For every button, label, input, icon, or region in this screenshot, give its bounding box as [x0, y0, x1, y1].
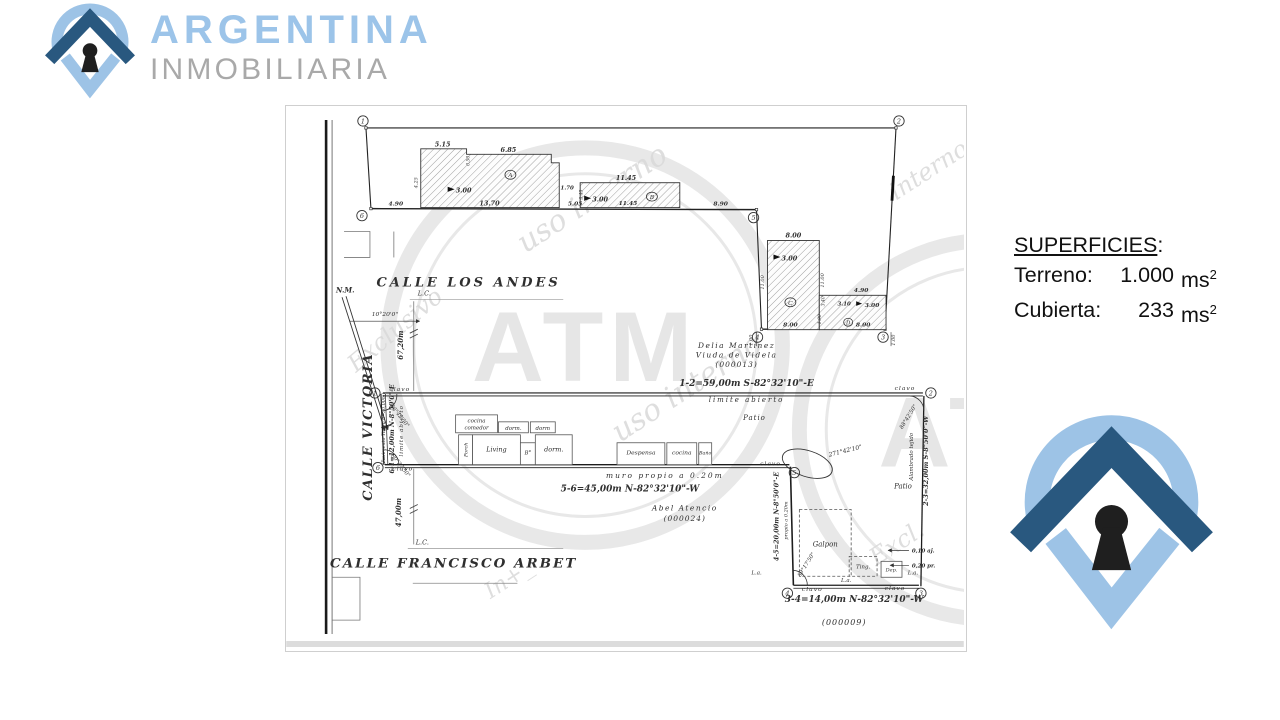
corner-number: 5	[751, 214, 755, 222]
cubierta-value: 233	[1110, 295, 1174, 330]
dim-label: 8.00	[783, 322, 798, 329]
room-label: cocina	[672, 450, 692, 457]
dim-label: 11.45	[619, 200, 638, 207]
dim-label: 5.05	[568, 201, 583, 208]
wall-note: propio a 0.20m	[783, 501, 789, 539]
course-label: 1-2=59,00m S-82°32'10"-E	[679, 379, 814, 389]
dim-label: 8.00	[856, 322, 871, 329]
dim-label: 3.00	[456, 187, 472, 195]
dim-label: 3.00	[592, 196, 608, 204]
dim-label: 11.00	[760, 275, 766, 289]
room-label: B°	[523, 451, 531, 457]
brand-wordmark: ARGENTINA INMOBILIARIA	[150, 8, 433, 87]
street-measure-label: 47,00m	[394, 498, 403, 527]
lc-label: L.C.	[415, 538, 429, 546]
course-label: 4-5=20,00m N-8°50'0"-E	[772, 472, 780, 561]
scan-edge-artifact	[286, 641, 964, 647]
brand-name-line1: ARGENTINA	[150, 8, 433, 52]
neighbor-parcel: (000024)	[664, 514, 706, 523]
offset-note: 0,10 aj.	[912, 548, 935, 554]
clavo-label: clavo	[895, 385, 916, 392]
room-label: comedor	[464, 425, 489, 431]
course-label: 3-4=14,00m N-82°32'10"-W	[785, 595, 925, 605]
unit-sup: 2	[1210, 302, 1217, 317]
superficies-title-colon: :	[1157, 233, 1163, 257]
lc-label: L.C.	[417, 289, 431, 297]
neighbor-owner: Abel Atencio	[651, 504, 718, 513]
dim-label: 6.85	[501, 146, 517, 154]
course-label: 2-3=32,00m S-8°50'0"-W	[922, 415, 930, 507]
north-angle-label: 10°20'0"	[372, 311, 399, 318]
dim-label: 5.15	[435, 140, 451, 148]
la-label: L.a.	[907, 570, 919, 576]
dim-label: 3.40	[821, 296, 827, 306]
building-letter: D	[845, 321, 851, 327]
clavo-label: clavo	[760, 461, 781, 468]
flyer-page: ARGENTINA INMOBILIARIA ATM ATM uso inter…	[0, 0, 1280, 720]
dim-label: 1.70	[561, 186, 575, 192]
street-francisco-arbet-label: CALLE FRANCISCO ARBET	[330, 555, 577, 571]
cadastral-plan-svg: ATM ATM uso interno Exclusivo uso intern…	[286, 106, 964, 649]
superficies-panel: SUPERFICIES: Terreno: 1.000 ms2 Cubierta…	[1014, 230, 1217, 330]
house-rooms: cocina comedor dorm. dorm Porch Living B…	[456, 415, 936, 577]
room-label: Despensa	[625, 450, 656, 457]
room-label: dorm.	[505, 426, 522, 432]
superficies-title: SUPERFICIES:	[1014, 230, 1217, 260]
street-victoria-label: CALLE VICTORIA	[361, 353, 376, 501]
cubierta-unit: ms2	[1181, 295, 1217, 330]
unit-sup: 2	[1210, 267, 1217, 282]
corner-number: 2	[896, 117, 901, 125]
street-los-andes-label: CALLE LOS ANDES	[376, 275, 560, 290]
course-label: 5-6=45,00m N-82°32'10"-W	[561, 485, 701, 495]
superficies-row-cubierta: Cubierta: 233 ms2	[1014, 295, 1217, 330]
room-label: cocina	[468, 418, 486, 424]
dim-label: 13.70	[479, 200, 500, 208]
boundary-note: limite abierto	[709, 396, 785, 404]
neighbor-owner: Viuda de Videla	[696, 351, 778, 360]
course-label: 6-1=12,00m N-8°50'0"-E	[388, 384, 396, 473]
patio-label: Patio	[893, 483, 912, 491]
dim-label: 8.90	[713, 201, 728, 208]
dim-label: 4.90	[389, 201, 404, 208]
north-marker-label: N.M.	[335, 285, 355, 294]
dim-label: 0.50	[466, 156, 472, 166]
clavo-label: clavo	[885, 585, 906, 592]
corner-number: 6	[360, 212, 364, 220]
corner-number: 6	[376, 464, 380, 472]
corner-number: 1	[361, 117, 365, 125]
dim-label: 1.90	[817, 314, 823, 324]
neighbor-owner: Delia Martinez	[697, 341, 775, 350]
offset-note: 0,20 pr.	[912, 563, 935, 569]
dim-label: 4.90	[854, 287, 869, 294]
room-label: Baño	[698, 450, 711, 457]
corner-number: 1	[373, 389, 377, 397]
terreno-unit: ms2	[1181, 260, 1217, 295]
boundary-note: limite abierto	[399, 405, 405, 456]
room-label: dorm.	[544, 446, 563, 454]
building-letter: C	[788, 300, 793, 307]
room-label: dorm	[536, 426, 551, 432]
clavo-label: clavo	[802, 586, 823, 593]
corner-angle-label: 89°17'50"	[797, 552, 817, 579]
la-label: L.a.	[840, 578, 852, 584]
room-label: Ting.	[856, 564, 870, 570]
terreno-label: Terreno:	[1014, 260, 1110, 295]
dim-label: 11.00	[820, 273, 826, 287]
fence-note: Alambrado tejido	[909, 432, 915, 481]
brand-name-line2: INMOBILIARIA	[150, 53, 433, 87]
terreno-value: 1.000	[1110, 260, 1174, 295]
dim-label: 3.00	[782, 254, 798, 262]
keyhole-icon	[81, 53, 98, 72]
neighbor-parcel: (000009)	[822, 618, 867, 627]
dim-label: 3.00	[865, 302, 880, 309]
dim-label: 3.45	[579, 190, 585, 200]
patio-label: Patio	[742, 414, 766, 422]
room-label: Galpon	[813, 540, 838, 548]
keyhole-icon	[1092, 528, 1131, 570]
unit-text: ms	[1181, 303, 1210, 327]
corner-number: 2	[928, 389, 933, 397]
superficies-row-terreno: Terreno: 1.000 ms2	[1014, 260, 1217, 295]
floor-plan-image: ATM ATM uso interno Exclusivo uso intern…	[285, 105, 967, 652]
watermark-text: interno	[884, 134, 964, 205]
la-label: L.a.	[750, 570, 762, 576]
corner-number: 3	[881, 334, 885, 342]
wall-note: muro propio a 0.20m	[606, 471, 724, 480]
room-label: Porch	[464, 442, 470, 457]
dim-label: 11.45	[616, 174, 637, 182]
building-letter: A	[507, 172, 512, 179]
unit-text: ms	[1181, 268, 1210, 292]
street-measure-label: 67,20m	[396, 331, 405, 360]
brand-house-pin-icon	[44, 2, 136, 112]
dim-label: 1.00	[891, 335, 897, 346]
neighbor-parcel: (000013)	[715, 360, 757, 369]
brand-house-pin-icon-large	[1008, 412, 1215, 660]
superficies-title-text: SUPERFICIES	[1014, 233, 1157, 257]
dim-label: 3.10	[838, 301, 852, 307]
room-label: Living	[485, 446, 506, 454]
dim-label: 8.00	[785, 232, 801, 240]
cubierta-label: Cubierta:	[1014, 295, 1110, 330]
corner-angle-label: 271°42'10"	[827, 444, 863, 459]
dim-label: 4.25	[413, 177, 419, 189]
building-letter: B	[649, 194, 655, 201]
room-label: Dep.	[885, 567, 898, 573]
